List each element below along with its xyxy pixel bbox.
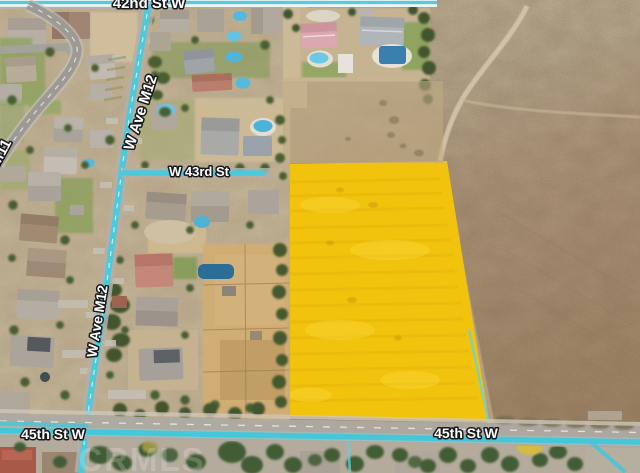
svg-text:W 43rd St: W 43rd St [169,164,230,179]
svg-text:45th St W: 45th St W [434,425,499,441]
svg-text:CRMLS: CRMLS [78,441,205,473]
svg-text:45th St W: 45th St W [21,426,86,442]
svg-text:42nd St W: 42nd St W [113,0,186,12]
